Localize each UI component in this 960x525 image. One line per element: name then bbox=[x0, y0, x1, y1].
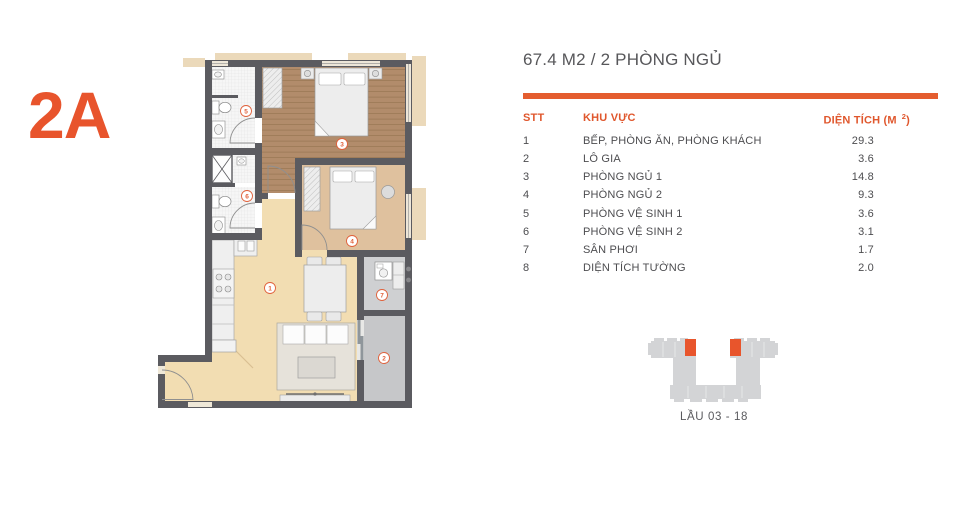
toilet2 bbox=[219, 196, 231, 206]
coffee-table bbox=[298, 357, 335, 378]
room-label-5: 5 bbox=[241, 106, 252, 117]
locator-caption: LẦU 03 - 18 bbox=[648, 411, 780, 423]
svg-text:6: 6 bbox=[245, 193, 249, 200]
svg-text:1: 1 bbox=[268, 285, 272, 292]
shoe-cabinet bbox=[212, 340, 236, 352]
svg-text:3: 3 bbox=[340, 141, 344, 148]
table-row: 7SÂN PHƠI1.7 bbox=[523, 241, 938, 259]
column-khu-vuc: KHU VỰC bbox=[583, 112, 788, 127]
row-value: 29.3 bbox=[788, 135, 938, 147]
row-name: PHÒNG NGỦ 1 bbox=[583, 171, 788, 183]
row-stt: 4 bbox=[523, 189, 583, 201]
table-header-row: STT KHU VỰC DIỆN TÍCH (M2) bbox=[523, 112, 938, 127]
table-row: 5PHÒNG VỆ SINH 13.6 bbox=[523, 204, 938, 222]
room-label-1: 1 bbox=[265, 283, 276, 294]
stove bbox=[213, 269, 234, 298]
floor-plan: 1 2 3 4 5 6 7 bbox=[152, 48, 432, 420]
row-value: 1.7 bbox=[788, 244, 938, 256]
row-value: 3.1 bbox=[788, 226, 938, 238]
row-name: PHÒNG VỆ SINH 2 bbox=[583, 226, 788, 238]
svg-text:2: 2 bbox=[382, 355, 386, 362]
locator-footprint bbox=[648, 333, 780, 403]
row-name: SÂN PHƠI bbox=[583, 244, 788, 256]
row-value: 14.8 bbox=[788, 171, 938, 183]
locator-building-blocks bbox=[648, 338, 778, 402]
column-stt: STT bbox=[523, 112, 583, 127]
area-table: 1BẾP, PHÒNG ĂN, PHÒNG KHÁCH29.3 2LÔ GIA3… bbox=[523, 132, 938, 278]
svg-text:7: 7 bbox=[380, 292, 384, 299]
title-underline-bar bbox=[523, 93, 938, 99]
svg-text:4: 4 bbox=[350, 238, 354, 245]
row-name: BẾP, PHÒNG ĂN, PHÒNG KHÁCH bbox=[583, 135, 788, 147]
page-title: 67.4 M2 / 2 PHÒNG NGỦ bbox=[523, 50, 938, 70]
table-row: 4PHÒNG NGỦ 29.3 bbox=[523, 186, 938, 204]
room-label-4: 4 bbox=[347, 236, 358, 247]
building-locator: LẦU 03 - 18 bbox=[648, 333, 780, 423]
row-value: 3.6 bbox=[788, 208, 938, 220]
shaft bbox=[212, 155, 232, 183]
svg-text:5: 5 bbox=[244, 108, 248, 115]
row-stt: 2 bbox=[523, 153, 583, 165]
toilet1 bbox=[219, 102, 231, 112]
row-name: PHÒNG VỆ SINH 1 bbox=[583, 208, 788, 220]
row-stt: 6 bbox=[523, 226, 583, 238]
room-label-6: 6 bbox=[242, 191, 253, 202]
row-stt: 3 bbox=[523, 171, 583, 183]
row-stt: 8 bbox=[523, 262, 583, 274]
row-value: 3.6 bbox=[788, 153, 938, 165]
row-value: 2.0 bbox=[788, 262, 938, 274]
dining-set bbox=[304, 257, 346, 321]
row-name: PHÒNG NGỦ 2 bbox=[583, 189, 788, 201]
row-name: DIỆN TÍCH TƯỜNG bbox=[583, 262, 788, 274]
stool bbox=[382, 186, 395, 199]
row-name: LÔ GIA bbox=[583, 153, 788, 165]
table-row: 2LÔ GIA3.6 bbox=[523, 150, 938, 168]
table-row: 6PHÒNG VỆ SINH 23.1 bbox=[523, 223, 938, 241]
table-row: 1BẾP, PHÒNG ĂN, PHÒNG KHÁCH29.3 bbox=[523, 132, 938, 150]
locator-unit-highlight bbox=[685, 339, 741, 356]
room-label-7: 7 bbox=[377, 290, 388, 301]
page: 2A bbox=[0, 0, 960, 525]
row-stt: 5 bbox=[523, 208, 583, 220]
table-row: 3PHÒNG NGỦ 114.8 bbox=[523, 168, 938, 186]
column-dien-tich: DIỆN TÍCH (M2) bbox=[788, 112, 938, 127]
row-stt: 1 bbox=[523, 135, 583, 147]
dining-table bbox=[304, 265, 346, 312]
room-label-3: 3 bbox=[337, 139, 348, 150]
row-stt: 7 bbox=[523, 244, 583, 256]
row-value: 9.3 bbox=[788, 189, 938, 201]
room-label-2: 2 bbox=[379, 353, 390, 364]
unit-code: 2A bbox=[28, 82, 110, 148]
info-panel: 67.4 M2 / 2 PHÒNG NGỦ STT KHU VỰC DIỆN T… bbox=[523, 50, 938, 277]
floor-plan-svg: 1 2 3 4 5 6 7 bbox=[152, 48, 432, 420]
table-row: 8DIỆN TÍCH TƯỜNG2.0 bbox=[523, 259, 938, 277]
